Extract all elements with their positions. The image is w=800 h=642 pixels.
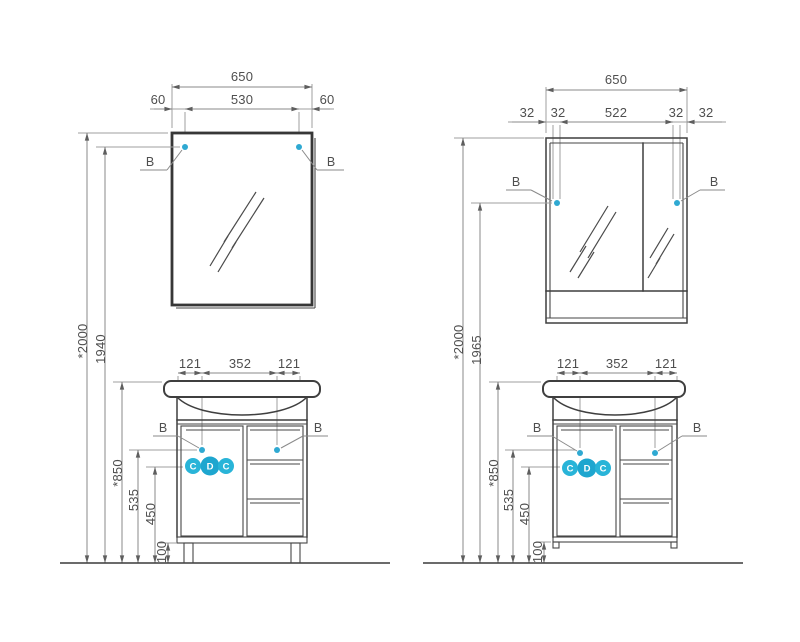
vanity-callout-b-right-label: B (314, 421, 322, 435)
height-dim-basin: *850 (110, 459, 125, 487)
cabinet-bottom-board-right (553, 537, 677, 542)
svg-text:C: C (567, 464, 574, 475)
cabinet-leg-left (184, 543, 193, 563)
plumbing-ports: C D C (185, 457, 234, 476)
cabinet-foot-right (671, 542, 677, 548)
door-panel-right (557, 426, 616, 536)
height-dim-vanity-mount: 535 (126, 489, 141, 511)
height-dim-legs-right: 100 (530, 541, 545, 563)
cabinet-foot-left (553, 542, 559, 548)
height-dim-legs: 100 (154, 541, 169, 563)
vanity-mount-dot-right (274, 447, 280, 453)
technical-drawing: 650 60 530 60 B B (0, 0, 800, 642)
vanity-callout-b-right-right-label: B (693, 421, 701, 435)
mount-callout-b-right-label: B (327, 155, 335, 169)
vanity-offset-left-dim: 121 (179, 356, 201, 371)
installation-drawing-page: 650 60 530 60 B B (0, 0, 800, 642)
mirror-offset-left-dim: 60 (151, 92, 166, 107)
height-dim-overall: *2000 (75, 324, 90, 359)
height-dim-basin-right: *850 (486, 459, 501, 487)
cabinet-bottom-board (177, 537, 307, 543)
mirror-width-dim: 650 (231, 69, 253, 84)
plumbing-ports-right: C D C (562, 459, 611, 478)
svg-text:C: C (600, 464, 607, 475)
vanity-callout-b-left-right-label: B (533, 421, 541, 435)
height-dim-vanity-mount-right: 535 (501, 489, 516, 511)
cabinet-seg3-dim: 32 (669, 105, 684, 120)
right-view-mirror-cabinet: 650 32 32 522 32 32 (506, 72, 726, 323)
drawer-stack-right (620, 426, 672, 536)
sink-basin (177, 397, 307, 415)
height-dim-mirror-mount: 1940 (93, 334, 108, 364)
mount-callout-b-left-label: B (146, 155, 154, 169)
vanity-callout-b-left-label: B (159, 421, 167, 435)
cabinet-width-dim: 650 (605, 72, 627, 87)
height-dim-cabinet-mount: 1965 (469, 335, 484, 365)
svg-text:C: C (190, 462, 197, 473)
cabinet-leg-right (291, 543, 300, 563)
height-dim-siphon: 450 (143, 503, 158, 525)
height-dim-overall-right: *2000 (451, 325, 466, 360)
sink-rim-right (543, 381, 685, 397)
vanity-offset-right-dim-right: 121 (655, 356, 677, 371)
cabinet-mount-dot-right (674, 200, 680, 206)
svg-text:D: D (584, 464, 591, 475)
cabinet-callout-b-left-label: B (512, 175, 520, 189)
drawer-stack (247, 426, 303, 536)
vanity-mount-span-dim-right: 352 (606, 356, 628, 371)
vanity-mount-dot-left-right (577, 450, 583, 456)
cabinet-callout-b-right-label: B (710, 175, 718, 189)
vanity-offset-left-dim-right: 121 (557, 356, 579, 371)
left-view-mirror: 650 60 530 60 B B (140, 69, 344, 308)
cabinet-seg1-dim: 32 (520, 105, 535, 120)
mirror-panel (172, 133, 312, 305)
cabinet-seg2-dim: 32 (551, 105, 566, 120)
vanity-callout-b-right: B (281, 421, 328, 448)
mirror-door-glass-mark-left (570, 206, 616, 278)
vanity-mount-span-dim: 352 (229, 356, 251, 371)
left-view-vanity: 121 352 121 B B (153, 356, 328, 563)
wall-mount-dot-left (182, 144, 188, 150)
vanity-offset-right-dim: 121 (278, 356, 300, 371)
mirror-offset-right-dim: 60 (320, 92, 335, 107)
vanity-callout-b-left: B (153, 421, 199, 448)
cabinet-callout-b-left: B (506, 175, 552, 201)
vanity-mount-dot-left (199, 447, 205, 453)
cabinet-mount-dot-left (554, 200, 560, 206)
wall-mount-dot-right (296, 144, 302, 150)
right-view-vanity: 121 352 121 B B (527, 356, 707, 548)
vanity-mount-dot-right-right (652, 450, 658, 456)
cabinet-center-dim: 522 (605, 105, 627, 120)
svg-text:D: D (207, 462, 214, 473)
svg-text:C: C (223, 462, 230, 473)
mirror-mount-span-dim: 530 (231, 92, 253, 107)
mirror-door-glass-mark-right (648, 228, 674, 278)
height-dim-siphon-right: 450 (517, 503, 532, 525)
sink-basin-right (553, 397, 677, 415)
cabinet-seg4-dim: 32 (699, 105, 714, 120)
right-view-height-dims: *2000 1965 *850 535 450 100 (423, 138, 743, 563)
sink-rim (164, 381, 320, 397)
